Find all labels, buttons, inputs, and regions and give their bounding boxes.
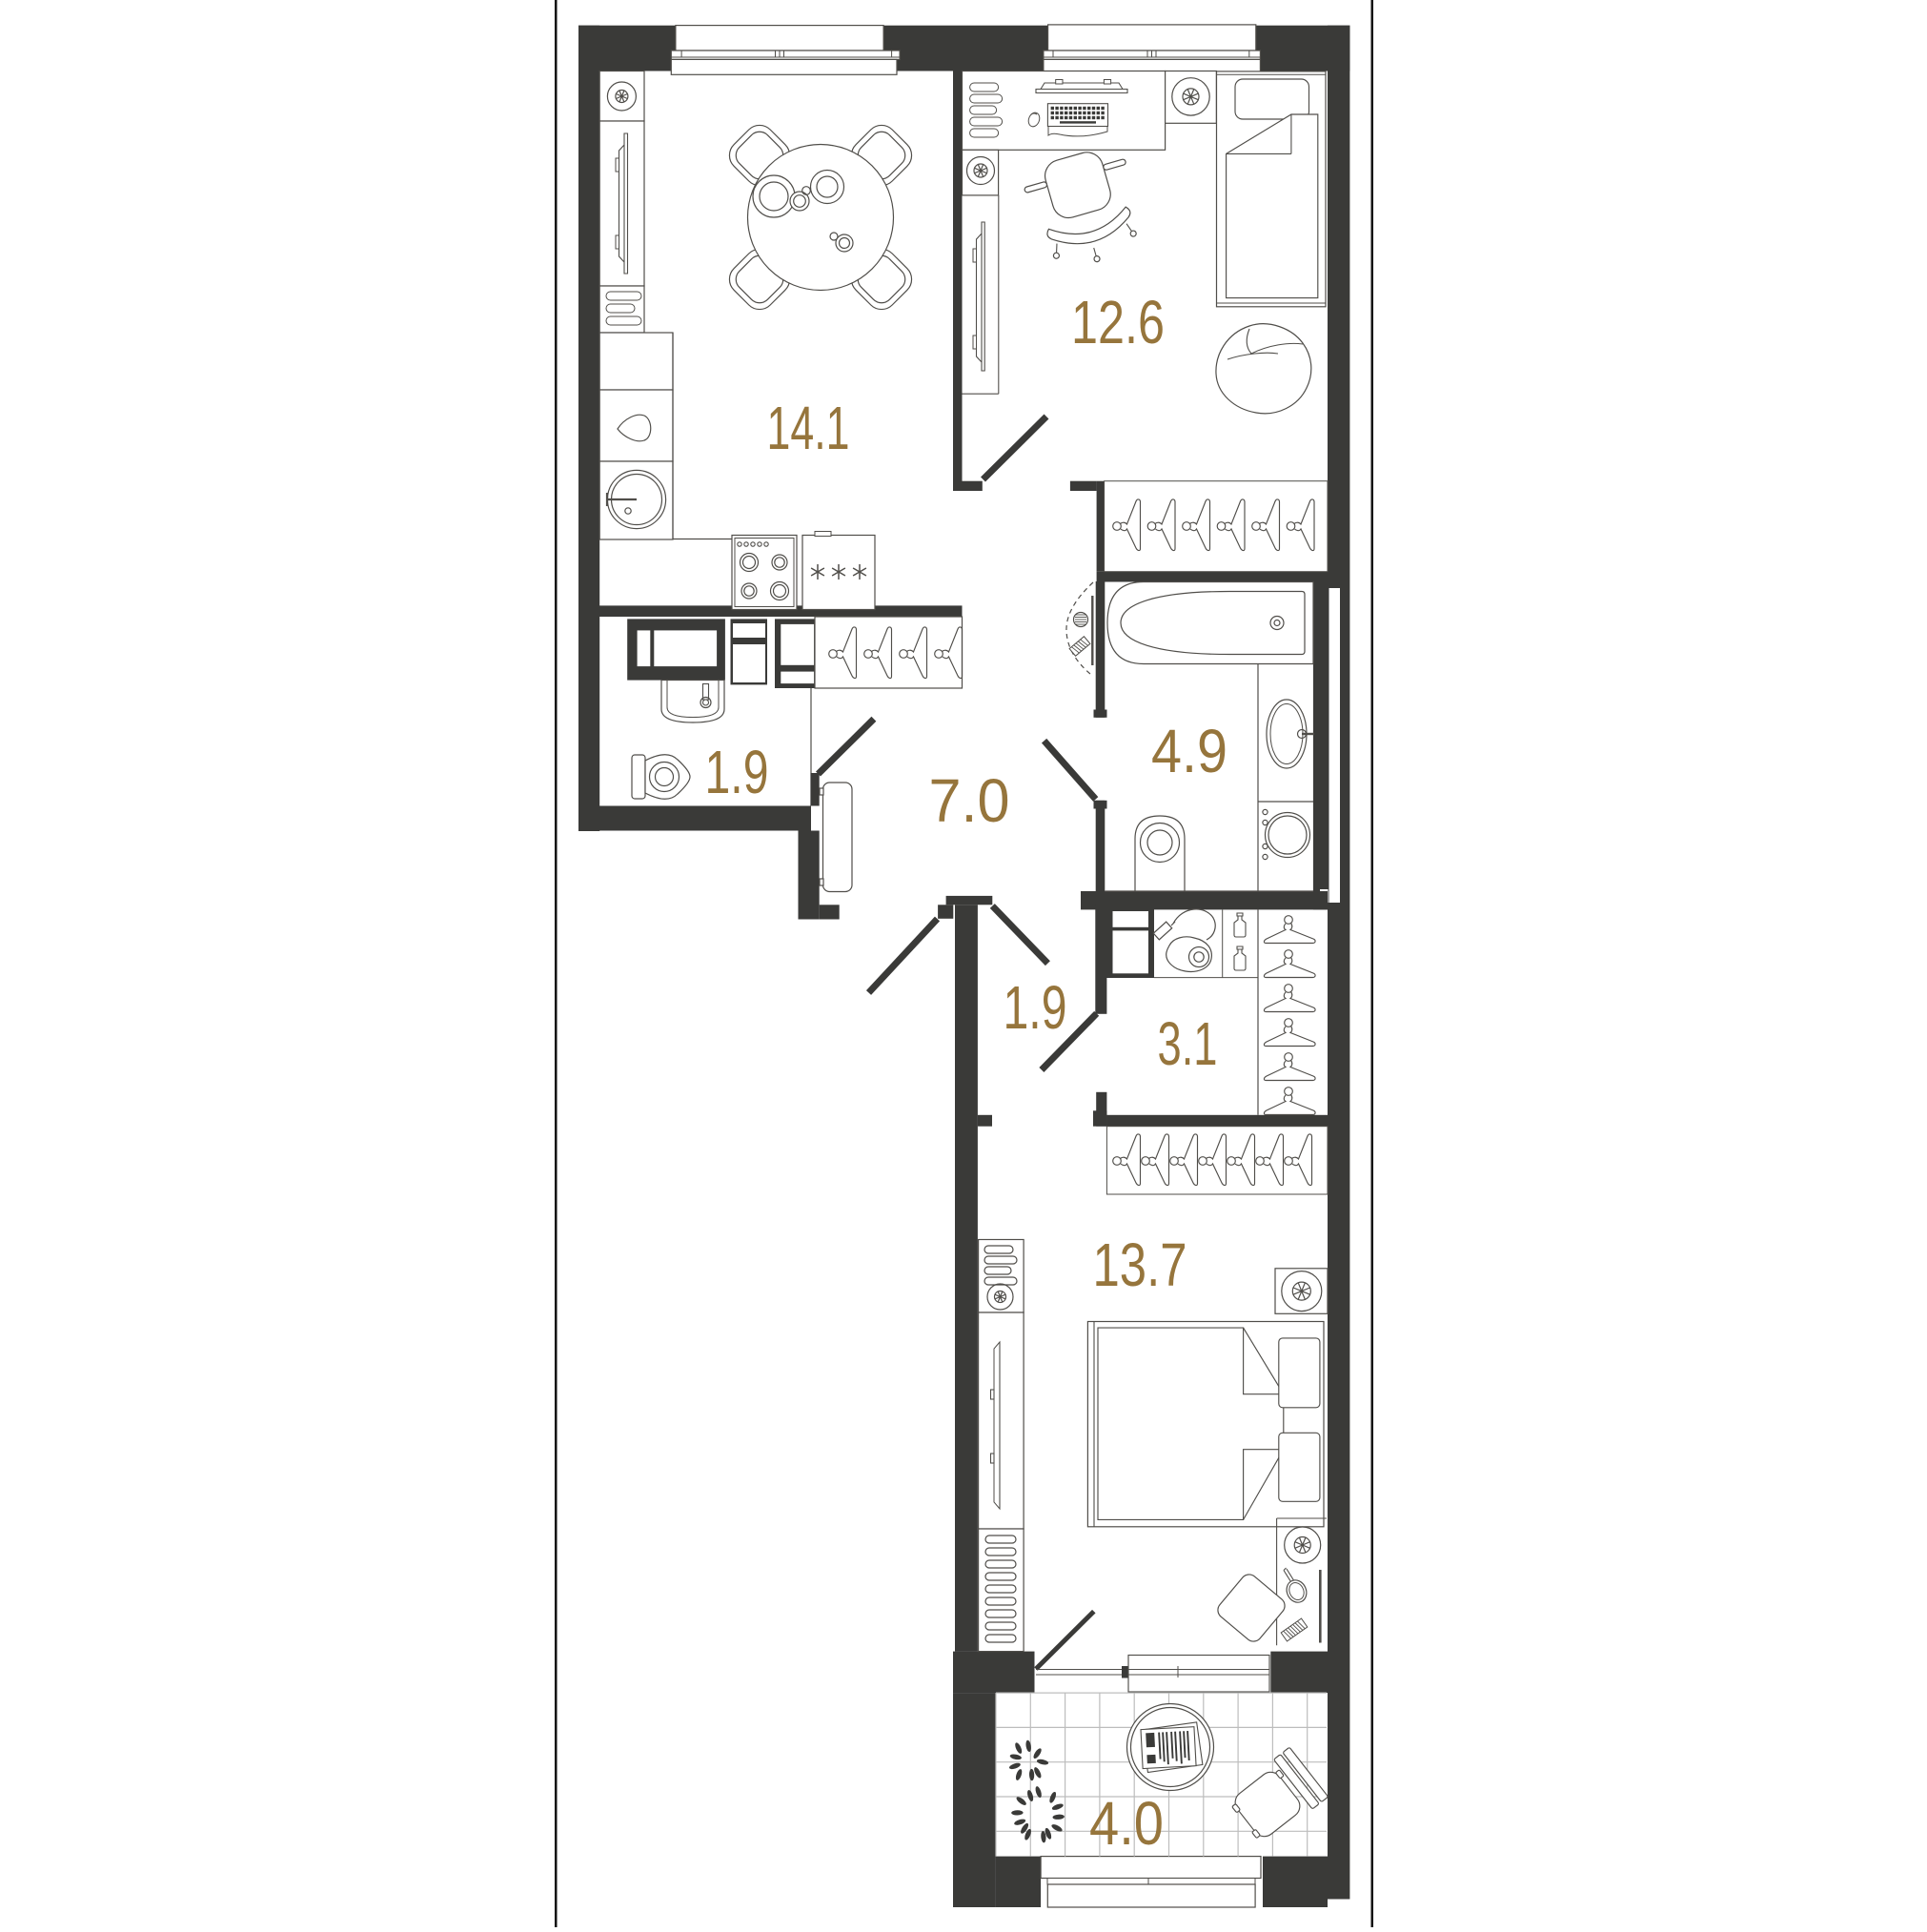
svg-text:7.0: 7.0 bbox=[929, 766, 1010, 835]
svg-text:3.1: 3.1 bbox=[1158, 1009, 1218, 1078]
svg-text:1.9: 1.9 bbox=[1004, 973, 1067, 1042]
svg-text:4.9: 4.9 bbox=[1151, 717, 1227, 785]
svg-text:13.7: 13.7 bbox=[1093, 1230, 1187, 1299]
svg-text:12.6: 12.6 bbox=[1071, 288, 1165, 356]
svg-text:14.1: 14.1 bbox=[767, 394, 850, 462]
svg-text:1.9: 1.9 bbox=[705, 738, 769, 806]
svg-text:4.0: 4.0 bbox=[1089, 1789, 1164, 1858]
